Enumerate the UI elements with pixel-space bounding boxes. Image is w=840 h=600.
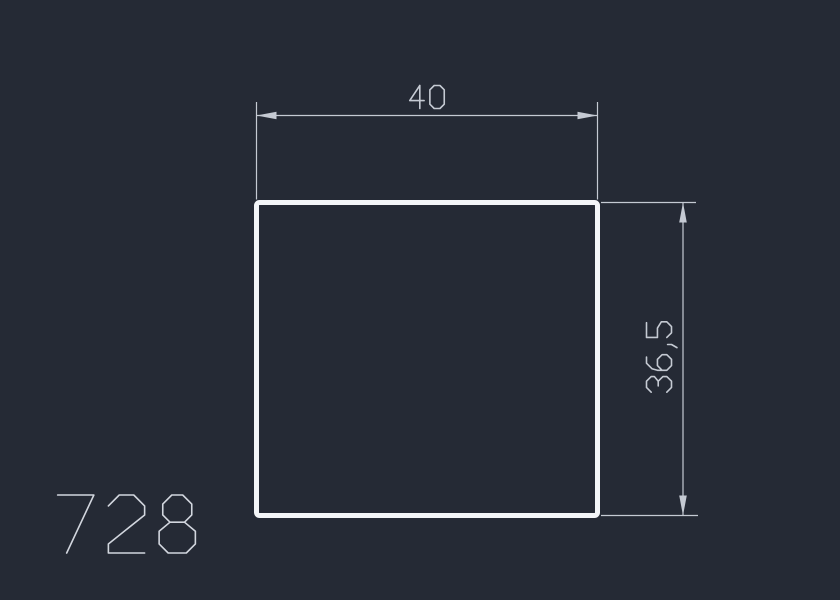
height-dimension: 36,5 — [601, 203, 698, 516]
width-dim-arrow-right-icon — [578, 112, 598, 120]
part-number-label: 728 — [58, 495, 196, 553]
height-dim-arrow-bottom-icon — [679, 496, 687, 516]
profile-outline — [257, 203, 598, 516]
drawing-svg: 40 36,5 728 — [0, 0, 840, 600]
height-dim-arrow-top-icon — [679, 203, 687, 223]
height-dim-text: 36,5 — [647, 322, 677, 392]
width-dim-text: 40 — [410, 86, 445, 109]
cad-drawing-canvas: 40 36,5 728 — [0, 0, 840, 600]
width-dim-arrow-left-icon — [257, 112, 277, 120]
width-dimension: 40 — [257, 86, 598, 200]
